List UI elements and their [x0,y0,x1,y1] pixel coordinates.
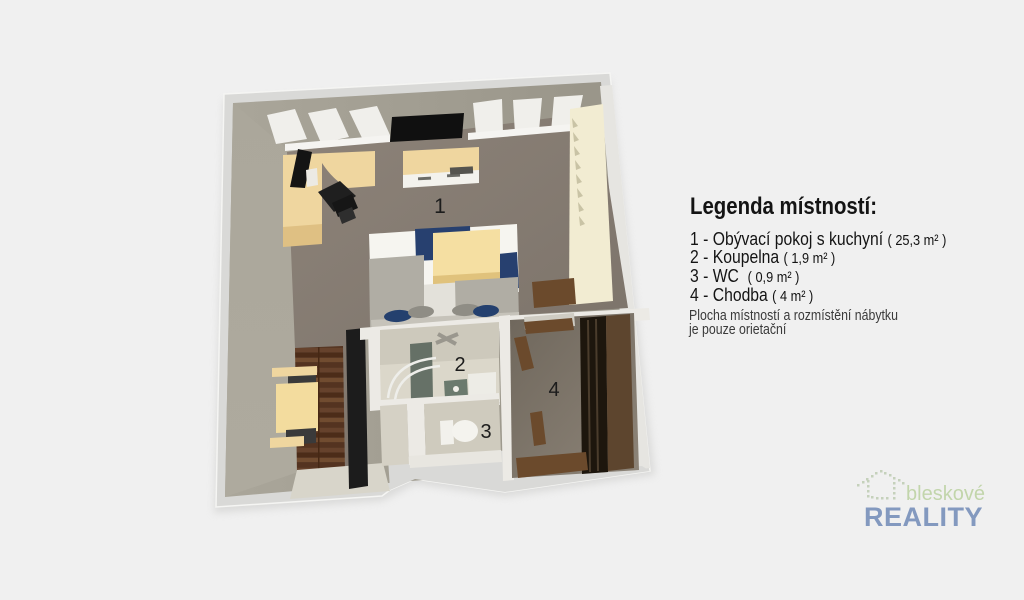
svg-text:REALITY: REALITY [864,502,983,532]
